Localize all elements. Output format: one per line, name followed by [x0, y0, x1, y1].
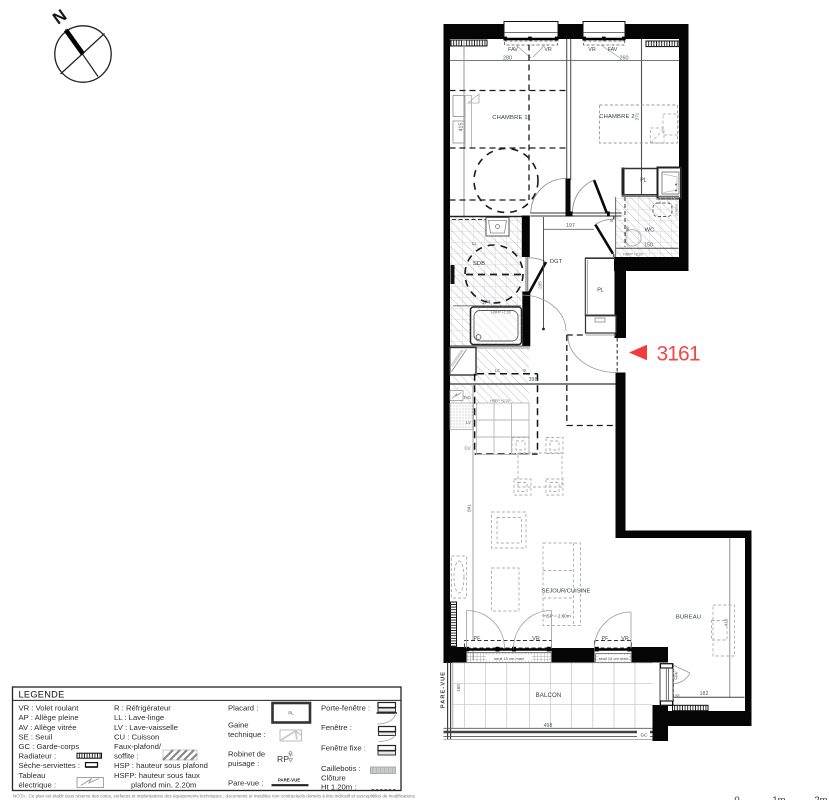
svg-text:CU : Cuisson: CU : Cuisson: [114, 732, 159, 741]
svg-text:LL : Lave-linge: LL : Lave-linge: [114, 713, 164, 722]
svg-text:NOTA : Ce plan est établi sous: NOTA : Ce plan est établi sous réserve d…: [13, 794, 416, 799]
svg-text:PARE-VUE: PARE-VUE: [441, 671, 447, 708]
svg-text:Caillebotis :: Caillebotis :: [321, 764, 361, 773]
svg-text:LEGENDE: LEGENDE: [19, 689, 65, 699]
svg-text:CU: CU: [464, 446, 470, 451]
svg-text:TAb: TAb: [463, 395, 471, 400]
svg-text:197: 197: [566, 223, 575, 229]
svg-text:HSP = 2.60m: HSP = 2.60m: [543, 614, 571, 619]
svg-text:410: 410: [723, 618, 728, 626]
svg-text:AP : Allège pleine: AP : Allège pleine: [19, 713, 79, 722]
svg-text:8: 8: [610, 218, 613, 223]
svg-text:1m: 1m: [772, 795, 785, 800]
svg-text:puisage :: puisage :: [228, 759, 259, 768]
svg-text:160: 160: [456, 684, 461, 692]
svg-text:Porte-fenêtre :: Porte-fenêtre :: [321, 704, 370, 713]
svg-text:technique :: technique :: [228, 730, 266, 739]
svg-text:LL: LL: [472, 241, 477, 246]
svg-text:seuil 15 cm maxi: seuil 15 cm maxi: [599, 656, 629, 661]
svg-text:Ht 1.20m :: Ht 1.20m :: [321, 783, 356, 792]
svg-text:VR: VR: [588, 47, 596, 53]
svg-text:HSFP: hauteur sous faux: HSFP: hauteur sous faux: [114, 771, 200, 780]
svg-text:3161: 3161: [657, 342, 700, 365]
svg-text:371: 371: [635, 112, 640, 120]
svg-text:260: 260: [620, 56, 629, 62]
svg-text:HSFP +2.20: HSFP +2.20: [490, 399, 510, 403]
svg-text:VR : Volet roulant: VR : Volet roulant: [19, 704, 80, 713]
svg-text:LC: LC: [495, 368, 500, 373]
svg-text:841: 841: [467, 504, 472, 512]
svg-text:Pare-vue :: Pare-vue :: [228, 778, 263, 787]
svg-text:LV: LV: [466, 420, 471, 425]
svg-text:174: 174: [482, 300, 491, 306]
svg-text:Fenêtre fixe :: Fenêtre fixe :: [321, 743, 366, 752]
svg-text:CHAMBRE 1: CHAMBRE 1: [492, 115, 528, 121]
svg-text:FAV: FAV: [674, 670, 679, 679]
svg-text:205: 205: [538, 281, 543, 289]
svg-text:SDB: SDB: [473, 261, 485, 267]
svg-text:cumulus: cumulus: [675, 203, 679, 216]
svg-text:Faux-plafond/: Faux-plafond/: [114, 742, 162, 751]
svg-text:LV : Lave-vaisselle: LV : Lave-vaisselle: [114, 723, 178, 732]
svg-text:182: 182: [700, 691, 709, 697]
svg-text:PL: PL: [640, 178, 647, 184]
svg-text:Fenêtre :: Fenêtre :: [321, 723, 352, 732]
svg-text:PARE-VUE: PARE-VUE: [278, 778, 300, 783]
svg-text:Sèche-serviettes :: Sèche-serviettes :: [19, 761, 81, 770]
svg-text:HSFP +2.20: HSFP +2.20: [623, 253, 643, 257]
svg-text:0: 0: [734, 795, 739, 800]
svg-text:Gaine: Gaine: [228, 721, 249, 730]
svg-text:RP: RP: [277, 754, 289, 764]
svg-text:FAV: FAV: [508, 47, 518, 53]
svg-text:plafond min. 2.20m: plafond min. 2.20m: [131, 780, 196, 789]
svg-text:soffite :: soffite :: [114, 752, 139, 761]
svg-text:Tableau: Tableau: [19, 771, 46, 780]
svg-text:150: 150: [644, 243, 653, 249]
svg-text:WC: WC: [645, 228, 655, 234]
svg-text:Robinet de: Robinet de: [228, 749, 265, 758]
svg-text:DGT: DGT: [550, 259, 563, 265]
svg-text:Placard :: Placard :: [228, 704, 258, 713]
svg-text:VR: VR: [532, 636, 540, 642]
svg-text:BALCON: BALCON: [536, 693, 562, 699]
svg-text:PF: PF: [602, 636, 610, 642]
svg-text:PF: PF: [474, 636, 482, 642]
svg-text:90: 90: [625, 226, 630, 232]
svg-text:Clôture: Clôture: [321, 773, 346, 782]
svg-text:PL: PL: [288, 711, 294, 716]
svg-text:FAV: FAV: [608, 47, 618, 53]
svg-text:seuil 15 cm maxi: seuil 15 cm maxi: [494, 656, 524, 661]
svg-text:Radiateur :: Radiateur :: [19, 752, 57, 761]
svg-text:HSFP +2.20: HSFP +2.20: [491, 311, 511, 315]
svg-text:CHAMBRE 2: CHAMBRE 2: [599, 114, 635, 120]
svg-text:AV : Allège vitrée: AV : Allège vitrée: [19, 723, 77, 732]
svg-text:HSP : hauteur sous plafond: HSP : hauteur sous plafond: [114, 761, 208, 770]
svg-text:398: 398: [529, 377, 538, 383]
svg-text:R : Réfrigérateur: R : Réfrigérateur: [114, 704, 171, 713]
svg-text:électrique :: électrique :: [19, 780, 57, 789]
svg-text:VR: VR: [621, 636, 629, 642]
svg-text:GC: GC: [641, 733, 649, 738]
svg-text:SÉJOUR/CUISINE: SÉJOUR/CUISINE: [542, 588, 591, 595]
svg-text:BUREAU: BUREAU: [676, 615, 701, 621]
svg-text:SE: SE: [675, 694, 680, 698]
svg-text:GC : Garde-corps: GC : Garde-corps: [19, 742, 80, 751]
svg-text:VR: VR: [544, 47, 552, 53]
svg-text:415: 415: [459, 123, 465, 132]
svg-text:PL: PL: [597, 288, 604, 294]
svg-text:2m: 2m: [814, 795, 827, 800]
svg-text:SE : Seuil: SE : Seuil: [19, 732, 53, 741]
